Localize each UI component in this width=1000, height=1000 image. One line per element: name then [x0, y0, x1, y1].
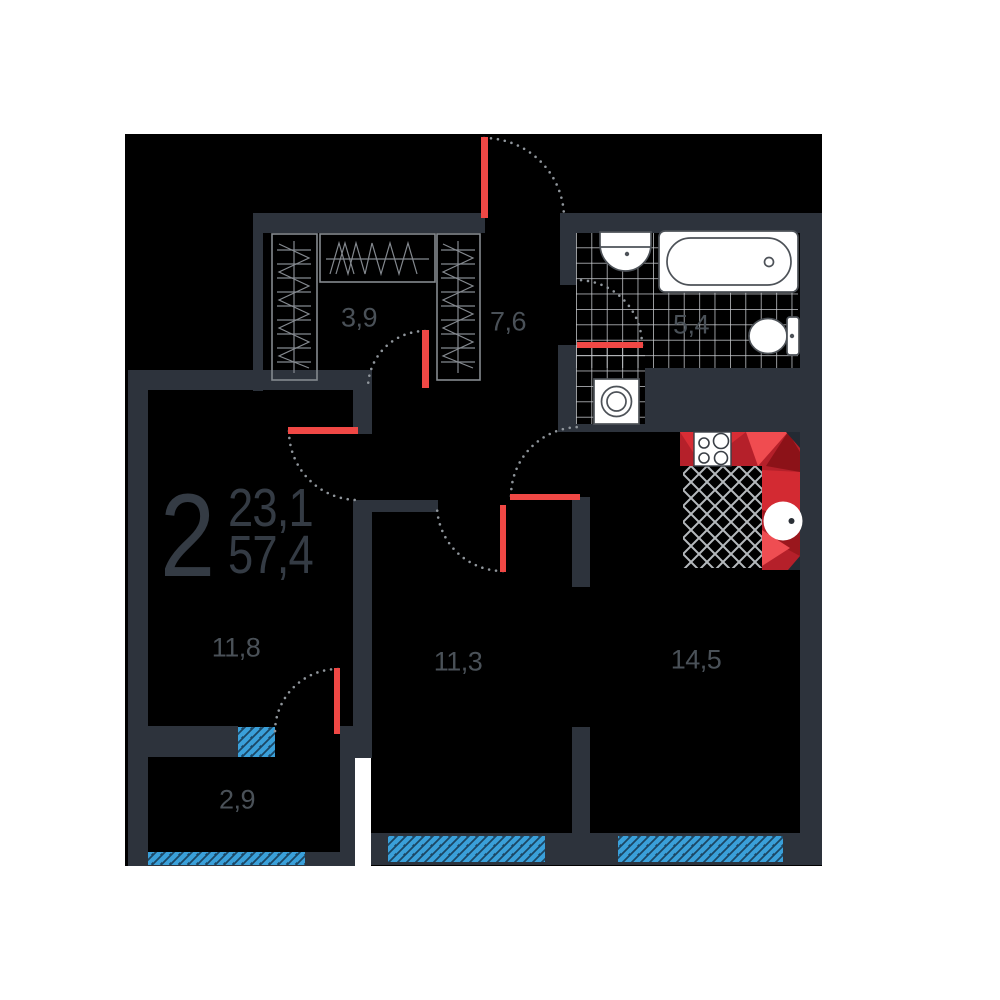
- bedroom-door: [288, 427, 358, 434]
- kitchen-sink-icon: [764, 502, 803, 541]
- kitchen-door: [510, 494, 580, 500]
- entry-door: [481, 137, 488, 218]
- toilet-icon: [749, 319, 787, 354]
- room-area-label-bathroom: 5,4: [673, 310, 709, 341]
- room-area-label-wardrobe: 3,9: [341, 303, 377, 334]
- wall-top-right: [563, 213, 822, 233]
- room-second-door: [500, 505, 506, 572]
- room-area-label-bedroom: 11,8: [212, 633, 261, 664]
- wall-top-left: [253, 213, 485, 233]
- floor-plan: 3,9 7,6 5,4 11,8 11,3 14,5 2,9 2 23,1 57…: [0, 0, 1000, 1000]
- bathroom-door: [577, 342, 643, 348]
- wall-right: [800, 213, 822, 865]
- wall-balcony-top: [128, 726, 238, 757]
- window-balcony-block: [238, 727, 275, 757]
- total-area: 57,4: [228, 528, 313, 582]
- room-area-label-hallway: 7,6: [490, 307, 526, 338]
- wardrobe-door: [422, 330, 429, 388]
- outline-notch: [355, 758, 371, 866]
- window-balcony-glazing: [148, 852, 305, 865]
- wall-bedroom-right-lower: [353, 500, 372, 758]
- wall-bathroom-left-lower: [558, 345, 576, 432]
- room-area-label-kitchen-living: 14,5: [671, 645, 722, 676]
- wall-bedroom-right-upper: [353, 382, 372, 434]
- wall-below-bathroom: [645, 368, 822, 432]
- wall-room-second-top: [353, 500, 438, 512]
- window-room-second: [388, 836, 545, 862]
- wall-rooms-divider-lower: [572, 727, 590, 833]
- room-area-label-room-second: 11,3: [434, 647, 483, 678]
- wall-rooms-divider-upper: [572, 497, 590, 587]
- wall-balcony-right: [340, 726, 355, 853]
- balcony-door: [334, 668, 340, 734]
- kitchen-unit-zone: [683, 466, 762, 568]
- rooms-count: 2: [160, 477, 215, 595]
- wall-left: [128, 370, 148, 866]
- window-kitchen-living: [618, 836, 783, 862]
- room-area-label-balcony: 2,9: [219, 785, 255, 816]
- floor-plan-drawing: [0, 0, 1000, 1000]
- kitchen-counter: [680, 432, 803, 570]
- wall-wardrobe-left: [253, 213, 263, 391]
- wall-bedroom-top: [128, 370, 372, 390]
- wall-bathroom-left-upper: [560, 213, 576, 285]
